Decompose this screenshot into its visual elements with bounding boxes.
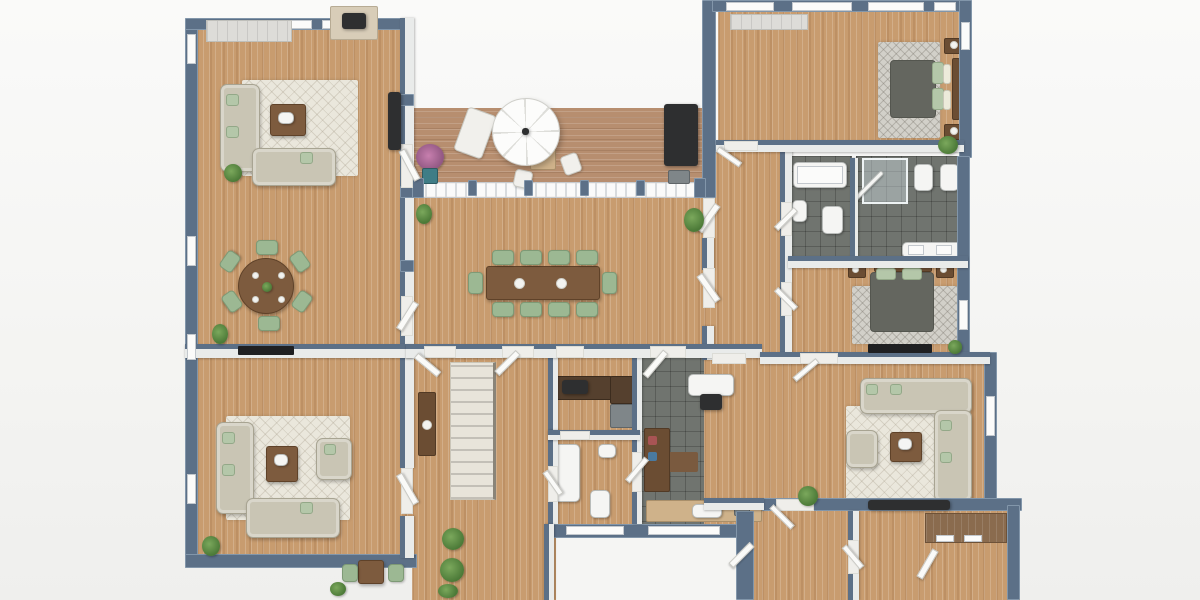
dining-chair: [576, 250, 598, 265]
wall-tv: [238, 346, 294, 355]
bathtub-basin: [797, 166, 843, 184]
window: [187, 474, 196, 504]
sofa-pillow: [324, 444, 336, 455]
vanity-basin: [936, 245, 952, 255]
sofa-pillow: [940, 420, 952, 431]
toilet: [590, 490, 610, 518]
wash-basin: [598, 444, 616, 458]
wall-left-wing-right-c: [400, 358, 414, 468]
dining-chair: [492, 250, 514, 265]
potted-plant: [330, 582, 346, 596]
table-centerpiece: [262, 282, 272, 292]
cooktop: [562, 380, 588, 394]
dining-chair: [548, 250, 570, 265]
bedroom-1-duvet: [890, 60, 936, 118]
sofa-pillow: [222, 464, 235, 476]
bistro-chair: [388, 564, 404, 582]
dining-chair: [258, 316, 280, 331]
coffee-table-tray: [278, 112, 294, 124]
living-right-armchair: [846, 430, 878, 468]
plate: [278, 296, 285, 303]
floor-plan: [0, 0, 1200, 600]
outer-wall-bottom-right: [1007, 505, 1020, 600]
sofa-pillow: [226, 94, 239, 106]
right-hallway-floor: [704, 148, 790, 360]
living-top-sofa-front: [252, 148, 336, 186]
door-opening: [560, 431, 590, 440]
wall-terrace-right: [702, 0, 716, 198]
window: [566, 526, 624, 535]
bistro-chair: [342, 564, 358, 582]
wall-kitchenette-left: [548, 356, 558, 434]
wall-post: [400, 260, 414, 272]
wall-left-wing-right-d: [400, 516, 414, 558]
bedroom-2-duvet: [870, 272, 934, 332]
bed-pillow: [876, 268, 896, 280]
bed-pillow-white: [943, 64, 951, 84]
sideboard: [868, 500, 950, 510]
desk-chair: [700, 394, 722, 410]
potted-plant: [938, 136, 958, 154]
window: [959, 300, 968, 330]
railing-post: [694, 178, 706, 198]
bedside-lamp: [950, 127, 958, 135]
wall-void-left: [544, 524, 554, 600]
bbq-grill: [664, 104, 698, 166]
door-opening: [556, 346, 584, 358]
wall-bath-bottom: [788, 256, 968, 268]
entrance-void: [556, 538, 740, 600]
sofa-pillow: [300, 502, 313, 514]
dining-chair: [256, 240, 278, 255]
shelf-item: [648, 452, 657, 461]
wall-entry-left: [632, 356, 642, 524]
sofa-pillow: [226, 126, 239, 138]
plate: [252, 296, 259, 303]
console-bowl: [422, 420, 432, 430]
door-opening: [724, 141, 758, 151]
coffee-table-tray: [274, 454, 288, 466]
bed-pillow: [902, 268, 922, 280]
window: [187, 236, 196, 266]
window: [187, 334, 196, 360]
coffee-table-tray: [898, 438, 912, 450]
dining-chair: [492, 302, 514, 317]
staircase: [450, 362, 496, 500]
potted-plant: [684, 208, 704, 232]
potted-plant: [438, 584, 458, 598]
sofa-pillow: [940, 452, 952, 463]
window: [187, 34, 196, 64]
entry-doormat: [668, 452, 698, 472]
sofa-pillow: [890, 384, 902, 395]
potted-plant: [948, 340, 962, 354]
wall-right-hall-bottom: [704, 498, 764, 510]
door-opening: [424, 346, 456, 358]
window: [792, 2, 852, 11]
window: [986, 396, 995, 436]
wall-left-wing-middle: [185, 344, 413, 358]
plate: [556, 278, 567, 289]
bedroom-1-wardrobe: [730, 14, 808, 30]
piano: [388, 92, 401, 150]
wall-hall-bath-divider: [780, 148, 792, 360]
window: [934, 2, 956, 11]
flower-pot: [422, 168, 438, 184]
dining-chair: [520, 250, 542, 265]
sofa-pillow: [222, 432, 235, 444]
umbrella-pole: [522, 128, 529, 135]
window: [648, 526, 720, 535]
long-dining-table: [486, 266, 600, 300]
plate: [278, 272, 285, 279]
wall-dining-hall-a: [702, 238, 714, 270]
dining-chair: [468, 272, 483, 294]
wall-post: [400, 94, 414, 106]
potted-plant: [202, 536, 220, 556]
entry-desk: [688, 374, 734, 396]
plate: [252, 272, 259, 279]
wall-dining-bottom: [406, 344, 762, 358]
potted-plant: [416, 204, 432, 224]
bistro-table: [358, 560, 384, 584]
shelf-item: [648, 436, 657, 445]
living-bottom-sofa-front: [246, 498, 340, 538]
bedside-lamp: [950, 41, 958, 49]
dining-chair: [576, 302, 598, 317]
terrace-railing: [414, 182, 706, 198]
wall-bath-divider: [850, 158, 858, 258]
toilet: [822, 206, 843, 234]
railing-post: [580, 180, 589, 196]
vanity-basin: [908, 245, 924, 255]
potted-plant: [440, 558, 464, 582]
bed-pillow-white: [943, 90, 951, 110]
wall-tv: [868, 344, 932, 353]
dining-chair: [602, 272, 617, 294]
potted-plant: [212, 324, 228, 344]
living-right-sofa-top: [860, 378, 972, 414]
dining-chair: [548, 302, 570, 317]
sofa-pillow: [866, 384, 878, 395]
potted-plant: [798, 486, 818, 506]
plate: [514, 278, 525, 289]
door-opening: [712, 353, 746, 364]
door-opening: [650, 346, 686, 358]
potted-plant: [442, 528, 464, 550]
window: [964, 535, 982, 542]
potted-plant: [224, 164, 242, 182]
sofa-pillow: [300, 152, 313, 164]
window: [936, 535, 954, 542]
entry-closet: [206, 20, 292, 42]
toilet: [914, 164, 933, 191]
grill-stool: [668, 170, 690, 184]
window: [868, 2, 924, 11]
window: [726, 2, 774, 11]
terrace-flowers: [416, 144, 444, 170]
fireplace-firebox: [342, 13, 366, 29]
window: [961, 22, 970, 50]
railing-post: [524, 180, 533, 196]
railing-post: [636, 180, 645, 196]
dining-chair: [520, 302, 542, 317]
railing-post: [468, 180, 477, 196]
